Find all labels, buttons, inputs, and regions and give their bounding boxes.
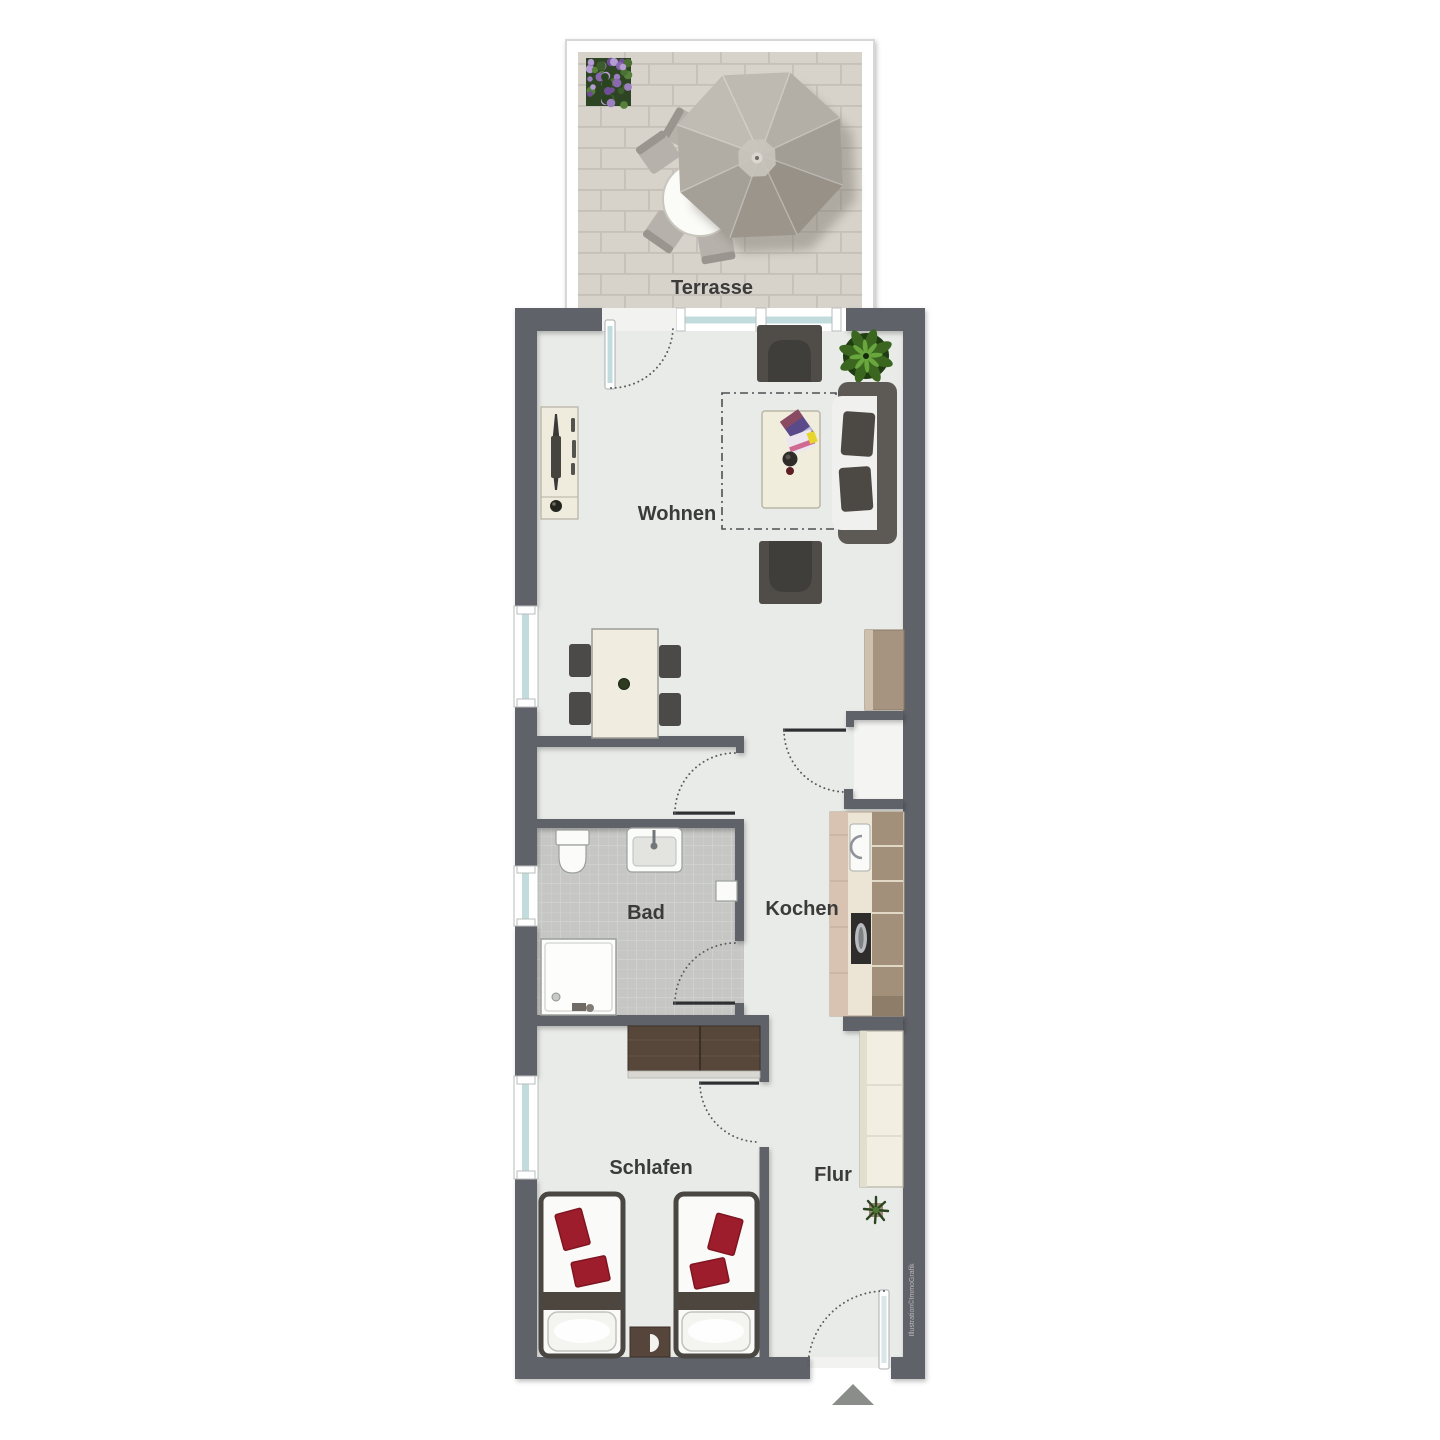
svg-text:Terrasse: Terrasse bbox=[671, 277, 753, 299]
svg-text:Wohnen: Wohnen bbox=[638, 503, 717, 525]
svg-text:Illustration©ImmoGrafik: Illustration©ImmoGrafik bbox=[908, 1263, 916, 1337]
svg-text:Flur: Flur bbox=[814, 1164, 852, 1186]
svg-text:Kochen: Kochen bbox=[765, 898, 838, 920]
svg-text:Bad: Bad bbox=[627, 902, 665, 924]
svg-text:Schlafen: Schlafen bbox=[609, 1157, 692, 1179]
